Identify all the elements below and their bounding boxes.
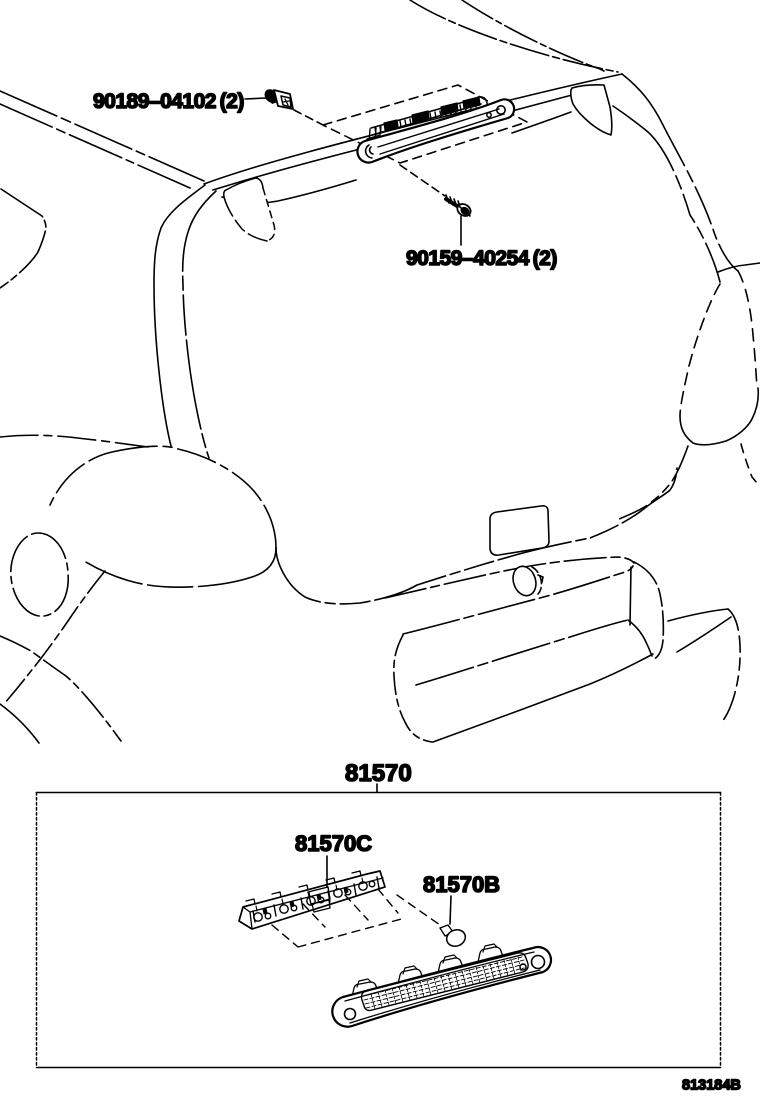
svg-text:81570B: 81570B	[423, 872, 500, 897]
svg-text:81570C: 81570C	[295, 831, 372, 856]
svg-text:81570: 81570	[345, 760, 412, 787]
svg-text:813184B: 813184B	[682, 1078, 741, 1094]
svg-text:90189–04102 (2): 90189–04102 (2)	[93, 90, 244, 113]
svg-text:90159–40254 (2): 90159–40254 (2)	[406, 247, 557, 270]
